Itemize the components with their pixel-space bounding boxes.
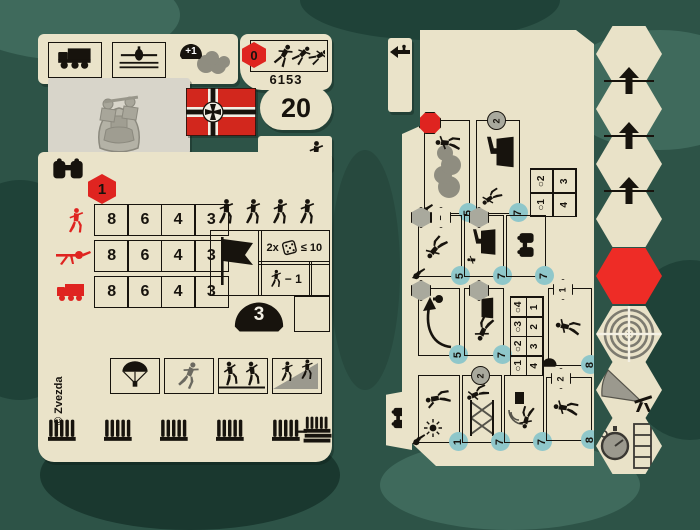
up-arrow-icon — [618, 67, 640, 95]
morale-flag-cell — [210, 230, 262, 296]
grenade-arc-icon — [421, 291, 455, 351]
round-marker: 2 — [487, 111, 506, 130]
range-value: 1 — [529, 305, 540, 311]
card-main-body: 1 8 6 4 3 — [38, 152, 332, 462]
fire-value: 6 — [127, 240, 162, 272]
points-value: 20 — [281, 93, 311, 124]
transport-strip: +1 — [38, 34, 238, 84]
truck-transport-box — [48, 42, 102, 78]
squad-size-row — [216, 198, 326, 226]
infantry-target-icon — [66, 207, 86, 234]
soldier-icon — [270, 198, 290, 225]
fire-value: 4 — [161, 204, 196, 236]
ability-climb-box — [218, 358, 268, 394]
range-value: 3 — [529, 344, 540, 350]
round-marker: 2 — [471, 366, 490, 385]
exit-tab — [388, 38, 412, 112]
camouflage-bonus-value: +1 — [180, 46, 202, 57]
cost-value: 8 — [585, 436, 597, 442]
round-marker-value: 2 — [475, 373, 485, 378]
hex-marker-value: 2 — [556, 376, 566, 381]
range-header: ○2 — [513, 341, 524, 353]
morale-multiplier: 2x — [267, 242, 279, 254]
points-pill: 20 — [260, 86, 332, 130]
advancing-soldier-icon — [178, 361, 200, 389]
product-tab: 0 6153 — [240, 34, 332, 90]
camouflage-bonus-box: +1 — [176, 40, 232, 78]
soldier-icon — [297, 198, 317, 225]
ammo-clip-icon — [48, 418, 78, 442]
landing-ramp-icon — [273, 359, 318, 390]
parachute-icon — [120, 359, 150, 389]
action-occupy-mg-nest: 7 — [464, 215, 504, 277]
ammo-clip-icon — [160, 418, 190, 442]
fire-value: 8 — [94, 204, 129, 236]
exit-arrow-icon — [390, 44, 410, 60]
cost-value: 5 — [453, 351, 465, 357]
up-arrow-icon — [618, 177, 640, 205]
range-table-2: ○1 ○2 ○3 ○4 4 3 2 1 — [510, 296, 544, 376]
soldier-icon — [243, 198, 263, 225]
flag-icon — [186, 88, 256, 136]
range-header: ○2 — [536, 176, 547, 188]
marching-soldier-icon — [553, 295, 585, 359]
morale-dice-cell: 2x ≤ 10 — [258, 230, 330, 265]
radio-operator-icon — [507, 378, 539, 438]
range-value: 3 — [559, 179, 570, 185]
air-transport-box — [112, 42, 166, 78]
casualty-soldier-icon — [269, 269, 283, 288]
range-header: ○1 — [513, 360, 524, 372]
action-charge: − 5 — [418, 215, 462, 277]
action-crawl-assault: 7 — [464, 288, 504, 356]
target-hex — [596, 306, 662, 362]
table-background: +1 0 6153 — [0, 0, 700, 480]
action-radio-contact: 7 — [504, 375, 544, 443]
cost-badge: 7 — [535, 266, 554, 285]
round-marker-value: 2 — [491, 118, 501, 123]
cost-value: 7 — [539, 272, 551, 278]
hex-marker-value: − — [436, 215, 446, 220]
range-value: 2 — [529, 324, 540, 330]
range-value: 4 — [529, 363, 540, 369]
assault-mg-nest-icon — [479, 125, 515, 209]
red-action-hex — [596, 248, 662, 304]
german-war-flag — [186, 88, 256, 136]
fire-value: 4 — [161, 276, 196, 308]
card-back-body: 5 2 7 ○1 ○2 — [402, 30, 594, 466]
ability-advance-box — [164, 358, 214, 394]
fire-value: 6 — [127, 276, 162, 308]
morale-threshold: ≤ 10 — [301, 242, 322, 254]
ammo-clip-icon — [104, 418, 134, 442]
dice-icon — [281, 239, 299, 257]
product-number: 6153 — [240, 72, 332, 87]
helmet-icon — [541, 357, 558, 368]
obstacle-climb-icon — [465, 378, 497, 438]
cannon-icon — [411, 433, 427, 446]
up-arrow-icon — [618, 122, 640, 150]
machine-gun-team-image — [48, 78, 190, 154]
hex-track — [596, 26, 666, 466]
unit-card-front[interactable]: +1 0 6153 — [0, 0, 350, 480]
action-march: 1 8 — [548, 288, 592, 366]
ability-landing-ramp-box — [272, 358, 322, 394]
morale-empty-cell — [309, 261, 330, 296]
machine-gun-target-icon — [54, 248, 92, 266]
mg-nest-icon — [467, 218, 499, 272]
order-cost-hex: 1 — [88, 174, 116, 204]
fire-value: 8 — [94, 276, 129, 308]
copyright-text: © Zvezda — [53, 355, 65, 425]
climbing-soldiers-icon — [219, 359, 265, 389]
morale-table: 2x ≤ 10 − 1 — [210, 230, 328, 294]
action-grenade-throw: 5 — [418, 288, 460, 356]
smoke-soldier-icon — [427, 125, 467, 209]
fire-value: 8 — [94, 240, 129, 272]
range-header: ○3 — [513, 321, 524, 333]
fire-arc-icon — [596, 362, 662, 418]
cannon-icon — [411, 267, 427, 280]
ammo-crate-icon — [298, 416, 336, 444]
morale-modifier-cell: − 1 — [258, 261, 312, 296]
action-observe: 7 — [506, 215, 546, 277]
morale-flag-icon — [215, 235, 257, 287]
range-table-1: ○1 ○2 4 3 — [530, 168, 577, 217]
defense-helmet: 3 — [230, 300, 290, 336]
marker-placeholder-box — [294, 296, 330, 332]
fire-row-machine-gun: 8 6 4 3 — [96, 240, 229, 272]
stopwatch-track-icon — [596, 418, 662, 474]
action-forced-march: 2 8 — [546, 377, 592, 441]
airplane-icon — [117, 45, 161, 71]
fire-value: 4 — [161, 240, 196, 272]
fire-arc-hex — [596, 362, 662, 418]
cost-value: 8 — [585, 361, 597, 367]
timer-hex — [596, 418, 662, 474]
range-value: 4 — [559, 202, 570, 208]
action-smoke-screen: 5 — [424, 120, 470, 214]
target-icon — [596, 306, 662, 362]
soldier-icon — [216, 198, 236, 225]
fire-row-infantry: 8 6 4 3 — [96, 204, 229, 236]
range-header: ○1 — [536, 199, 547, 211]
defense-value: 3 — [230, 304, 288, 326]
ability-parachute-box — [110, 358, 160, 394]
vehicle-target-icon — [54, 282, 88, 302]
entrench-cost-value: 0 — [250, 48, 257, 63]
ammo-clip-icon — [216, 418, 246, 442]
walking-soldier-icon — [551, 382, 585, 436]
miniature-photo — [48, 78, 190, 154]
hex-marker-value: 1 — [558, 287, 568, 292]
morale-modifier: − 1 — [285, 272, 302, 286]
binoculars-icon — [511, 232, 541, 258]
cost-value: 7 — [497, 351, 509, 357]
ammo-row — [46, 418, 324, 448]
fire-value: 6 — [127, 204, 162, 236]
fire-row-vehicle: 8 6 4 3 — [96, 276, 229, 308]
order-cost-value: 1 — [98, 181, 106, 198]
action-attack-mg-nest: 2 7 — [476, 120, 520, 214]
crawling-soldier-icon — [467, 291, 499, 351]
flare-soldier-icon — [421, 378, 455, 438]
action-climb-obstacle: 2 7 — [462, 375, 502, 443]
action-signal-flare: 1 — [418, 375, 460, 443]
range-header: ○4 — [513, 302, 524, 314]
unit-card-back[interactable]: 5 2 7 ○1 ○2 — [360, 0, 700, 480]
binoculars-icon — [52, 158, 84, 180]
truck-icon — [55, 46, 95, 70]
